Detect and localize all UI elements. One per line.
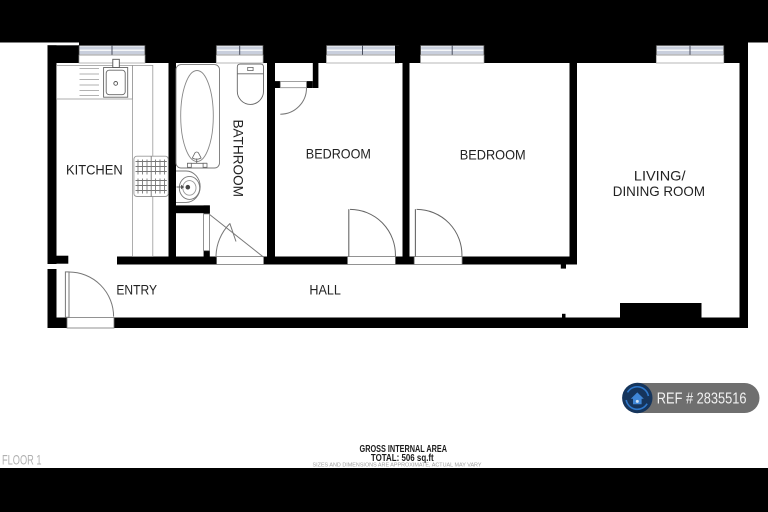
- svg-text:FLOOR 1: FLOOR 1: [2, 452, 42, 468]
- svg-text:BEDROOM: BEDROOM: [460, 148, 526, 163]
- svg-text:BEDROOM: BEDROOM: [306, 147, 371, 162]
- svg-text:HALL: HALL: [309, 283, 341, 298]
- svg-text:KITCHEN: KITCHEN: [66, 163, 123, 178]
- svg-text:DINING ROOM: DINING ROOM: [613, 184, 705, 199]
- svg-text:ENTRY: ENTRY: [116, 283, 157, 298]
- svg-text:LIVING/: LIVING/: [634, 168, 686, 183]
- svg-text:SIZES AND DIMENSIONS ARE APPRO: SIZES AND DIMENSIONS ARE APPROXIMATE, AC…: [313, 463, 482, 469]
- svg-text:BATHROOM: BATHROOM: [230, 120, 245, 198]
- svg-text:REF # 2835516: REF # 2835516: [657, 391, 747, 408]
